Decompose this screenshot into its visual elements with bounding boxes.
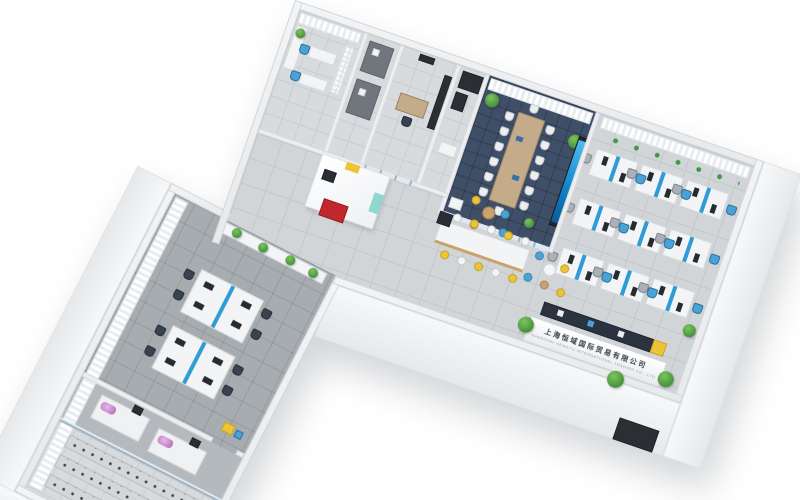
bar-stool (507, 273, 518, 284)
office-chair (725, 204, 738, 217)
bar-stool (456, 255, 467, 266)
lounge-stool (539, 279, 550, 290)
lounge-stool (534, 250, 545, 261)
office-3d-floorplan-render: 上海恒域国际贸易有限公司 SHANGHAI HENGYU INTERNATION… (0, 0, 800, 500)
office-chair (691, 302, 704, 315)
bar-stool (490, 267, 501, 278)
sideboard-yellow-chair (650, 339, 668, 357)
lounge-stool (555, 287, 566, 298)
bar-stool (439, 249, 450, 260)
office-chair (708, 253, 721, 266)
bar-stool (473, 261, 484, 272)
lounge-stool (522, 272, 533, 283)
building: 上海恒域国际贸易有限公司 SHANGHAI HENGYU INTERNATION… (41, 0, 800, 500)
lounge-round-table (541, 262, 558, 279)
